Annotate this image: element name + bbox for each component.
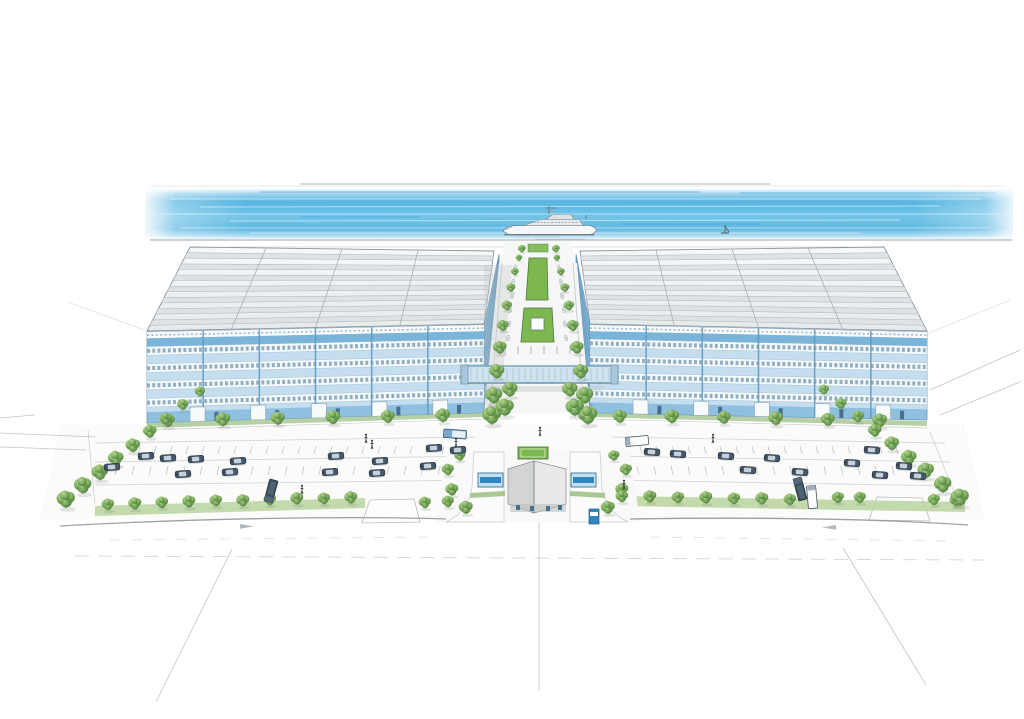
right-warehouse: [576, 247, 927, 420]
car: [230, 457, 246, 467]
median-lawn-a: [526, 258, 548, 300]
entry-mark: [657, 406, 661, 415]
entry-mark: [457, 405, 461, 414]
car: [175, 470, 191, 480]
car: [844, 459, 860, 469]
car: [420, 462, 436, 472]
left-facade-detail: [147, 325, 484, 422]
door: [633, 400, 648, 414]
gate-canopy-left: [478, 473, 503, 487]
car: [160, 454, 176, 464]
door: [251, 405, 266, 420]
car: [372, 457, 388, 467]
car: [369, 469, 385, 479]
truck-white: [625, 435, 649, 446]
median-pavilion: [531, 318, 544, 330]
car: [910, 472, 926, 482]
entry-mark: [900, 411, 904, 420]
car: [426, 444, 442, 454]
gate-canopy-right: [571, 473, 596, 487]
car: [104, 463, 120, 473]
driveway-left: [362, 499, 420, 523]
car: [188, 455, 204, 465]
architectural-rendering: [0, 0, 1024, 719]
car: [670, 450, 686, 460]
car: [864, 446, 880, 456]
door: [190, 407, 205, 422]
car: [872, 471, 888, 481]
truck-blue: [443, 429, 466, 439]
entry-mark: [396, 407, 400, 416]
car: [322, 468, 338, 478]
door: [312, 403, 327, 418]
gate-booth: [589, 509, 599, 524]
car: [222, 468, 238, 478]
car: [328, 452, 344, 462]
gatehouse: [508, 461, 566, 513]
car: [644, 448, 660, 458]
car: [718, 452, 734, 462]
right-facade-detail: [590, 325, 927, 420]
door: [755, 402, 770, 416]
door: [694, 401, 709, 415]
car: [450, 446, 466, 456]
car: [896, 462, 912, 472]
pedestrian-bridge: [461, 365, 618, 392]
car: [764, 454, 780, 464]
car: [138, 452, 154, 462]
car: [740, 466, 756, 476]
truck-white: [806, 485, 817, 509]
car: [792, 468, 808, 478]
